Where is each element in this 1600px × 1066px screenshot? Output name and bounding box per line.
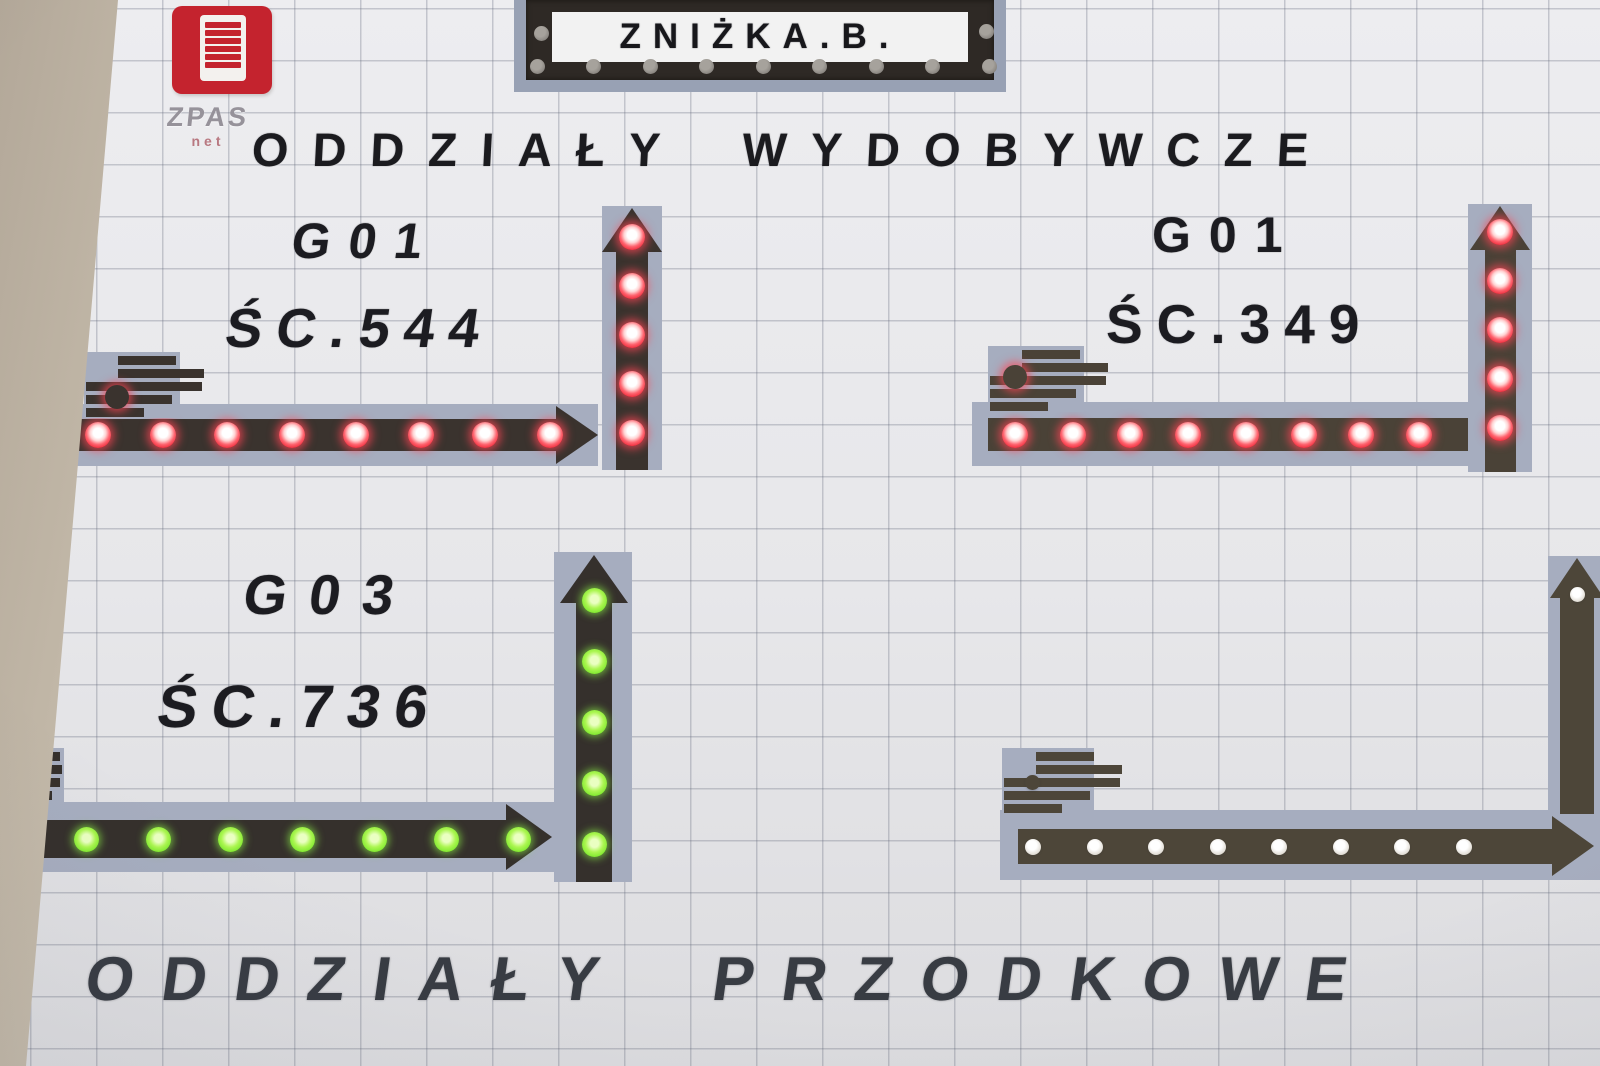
led-indicator <box>343 422 369 448</box>
led-indicator <box>1348 422 1374 448</box>
sign-label: ZNIŻKA.B. <box>552 12 968 62</box>
conveyor-arrow-vertical <box>602 206 662 470</box>
sign-led-unlit <box>586 59 601 74</box>
section-title-mining: ODDZIAŁY WYDOBYWCZE <box>251 122 1334 177</box>
conveyor-arrow-horizontal <box>1000 810 1600 880</box>
led-indicator <box>1333 839 1349 855</box>
led-indicator <box>279 422 305 448</box>
led-indicator <box>1394 839 1410 855</box>
led-indicator <box>1003 365 1027 389</box>
mimic-board-photo: ZPAS net ZNIŻKA.B. ODDZIAŁY WYDOBYWCZE O… <box>0 0 1600 1066</box>
conveyor-arrow-vertical <box>1548 556 1600 814</box>
sign-led-unlit <box>869 59 884 74</box>
led-indicator <box>1487 317 1513 343</box>
led-indicator <box>537 422 563 448</box>
led-indicator <box>408 422 434 448</box>
conveyor-arrow-vertical <box>554 552 632 882</box>
group-label: G01 <box>288 212 445 270</box>
face-label: ŚC.544 <box>222 296 498 360</box>
sign-led-unlit <box>534 26 549 41</box>
led-indicator <box>1025 775 1040 790</box>
led-indicator <box>1087 839 1103 855</box>
led-indicator <box>362 827 387 852</box>
sign-led-unlit <box>699 59 714 74</box>
led-indicator <box>85 422 111 448</box>
led-indicator <box>105 385 129 409</box>
arrowhead-right-icon <box>1552 816 1594 876</box>
led-indicator <box>1271 839 1287 855</box>
led-indicator <box>582 649 607 674</box>
face-label: ŚC.349 <box>1106 292 1373 356</box>
led-indicator <box>74 827 99 852</box>
group-label: G01 <box>1152 206 1301 264</box>
section-title-headings: ODDZIAŁY PRZODKOWE <box>81 944 1380 1015</box>
logo-sub-text: net <box>158 133 258 149</box>
cabinet-icon <box>200 15 246 81</box>
led-indicator <box>1060 422 1086 448</box>
led-indicator <box>582 832 607 857</box>
led-indicator <box>1487 268 1513 294</box>
led-indicator <box>619 371 645 397</box>
conveyor-arrow-vertical <box>1468 204 1532 472</box>
led-indicator <box>214 422 240 448</box>
group-label: G03 <box>239 562 420 627</box>
led-indicator <box>1210 839 1226 855</box>
led-indicator <box>582 710 607 735</box>
led-indicator <box>619 322 645 348</box>
led-indicator <box>619 420 645 446</box>
conveyor-arrow-horizontal <box>0 802 558 872</box>
led-indicator <box>434 827 459 852</box>
sign-led-unlit <box>979 24 994 39</box>
led-indicator <box>582 588 607 613</box>
zniska-sign: ZNIŻKA.B. <box>514 0 1006 92</box>
led-indicator <box>1487 415 1513 441</box>
led-indicator <box>1406 422 1432 448</box>
led-indicator <box>290 827 315 852</box>
led-indicator <box>619 224 645 250</box>
led-indicator <box>582 771 607 796</box>
longwall-face-symbol <box>84 352 180 418</box>
led-indicator <box>1025 839 1041 855</box>
sign-led-unlit <box>530 59 545 74</box>
led-indicator <box>150 422 176 448</box>
longwall-face-symbol <box>988 346 1084 412</box>
zpas-logo: ZPAS net <box>158 6 258 149</box>
sign-led-unlit <box>982 59 997 74</box>
led-indicator <box>1456 839 1472 855</box>
led-indicator <box>506 827 531 852</box>
led-indicator <box>1175 422 1201 448</box>
led-indicator <box>146 827 171 852</box>
led-indicator <box>1233 422 1259 448</box>
led-indicator <box>1487 366 1513 392</box>
led-indicator <box>1487 219 1513 245</box>
face-label: ŚC.736 <box>153 672 447 741</box>
led-indicator <box>1002 422 1028 448</box>
logo-brand-text: ZPAS <box>156 102 259 133</box>
led-indicator <box>472 422 498 448</box>
led-indicator <box>1291 422 1317 448</box>
led-indicator <box>218 827 243 852</box>
zpas-logo-mark-icon <box>172 6 272 94</box>
led-indicator <box>619 273 645 299</box>
sign-led-unlit <box>812 59 827 74</box>
sign-led-unlit <box>925 59 940 74</box>
led-indicator <box>1570 587 1585 602</box>
led-indicator <box>1148 839 1164 855</box>
sign-led-unlit <box>756 59 771 74</box>
sign-led-unlit <box>643 59 658 74</box>
longwall-face-symbol <box>1002 748 1094 814</box>
